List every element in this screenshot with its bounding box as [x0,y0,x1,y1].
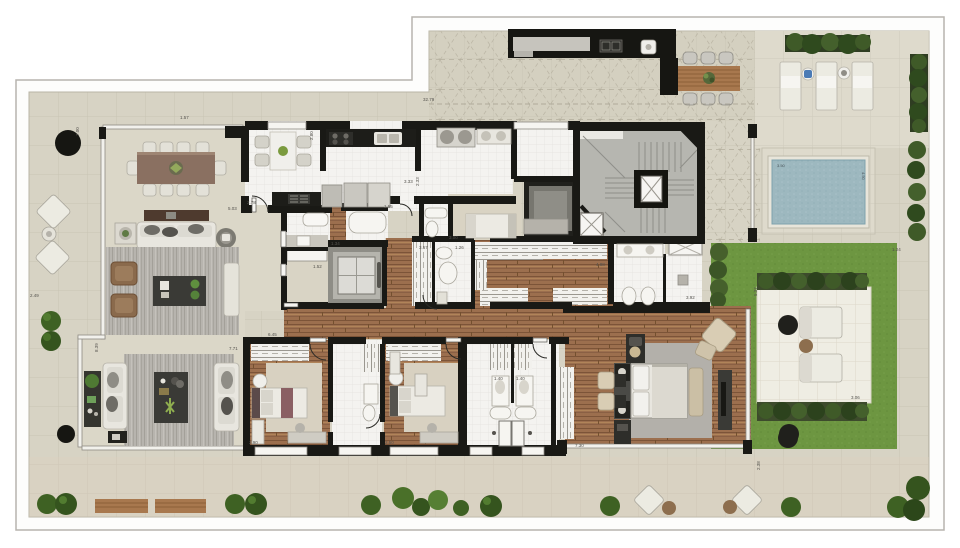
svg-text:1.40: 1.40 [494,376,503,381]
svg-text:5.37: 5.37 [753,287,758,296]
svg-text:2.38: 2.38 [756,461,761,470]
svg-text:1.34: 1.34 [331,241,340,246]
svg-text:7.00: 7.00 [75,127,80,136]
svg-text:4.50: 4.50 [861,172,866,181]
svg-text:6.45: 6.45 [268,332,277,337]
svg-text:5.03: 5.03 [228,206,237,211]
svg-text:3.50: 3.50 [777,163,786,168]
svg-text:4.88: 4.88 [596,262,605,267]
svg-text:3.57: 3.57 [419,245,428,250]
svg-text:7.30: 7.30 [575,443,584,448]
svg-text:3.92: 3.92 [686,295,695,300]
svg-text:1.55: 1.55 [384,204,393,209]
svg-text:2.33: 2.33 [415,177,420,186]
svg-text:7.71: 7.71 [229,346,238,351]
svg-text:1.57: 1.57 [180,115,189,120]
svg-text:3.06: 3.06 [851,395,860,400]
svg-text:2.50: 2.50 [385,440,394,445]
svg-text:2.78: 2.78 [247,200,256,205]
svg-text:2.49: 2.49 [30,293,39,298]
svg-text:3.00: 3.00 [449,235,458,240]
svg-text:1.52: 1.52 [313,264,322,269]
svg-text:2.80: 2.80 [309,131,314,140]
svg-text:3.33: 3.33 [404,179,413,184]
svg-text:1.24: 1.24 [892,247,901,252]
svg-text:8.39: 8.39 [94,343,99,352]
svg-text:32.79: 32.79 [423,97,435,102]
svg-text:1.40: 1.40 [516,376,525,381]
svg-text:2.90: 2.90 [249,440,258,445]
svg-text:1.26: 1.26 [455,245,464,250]
